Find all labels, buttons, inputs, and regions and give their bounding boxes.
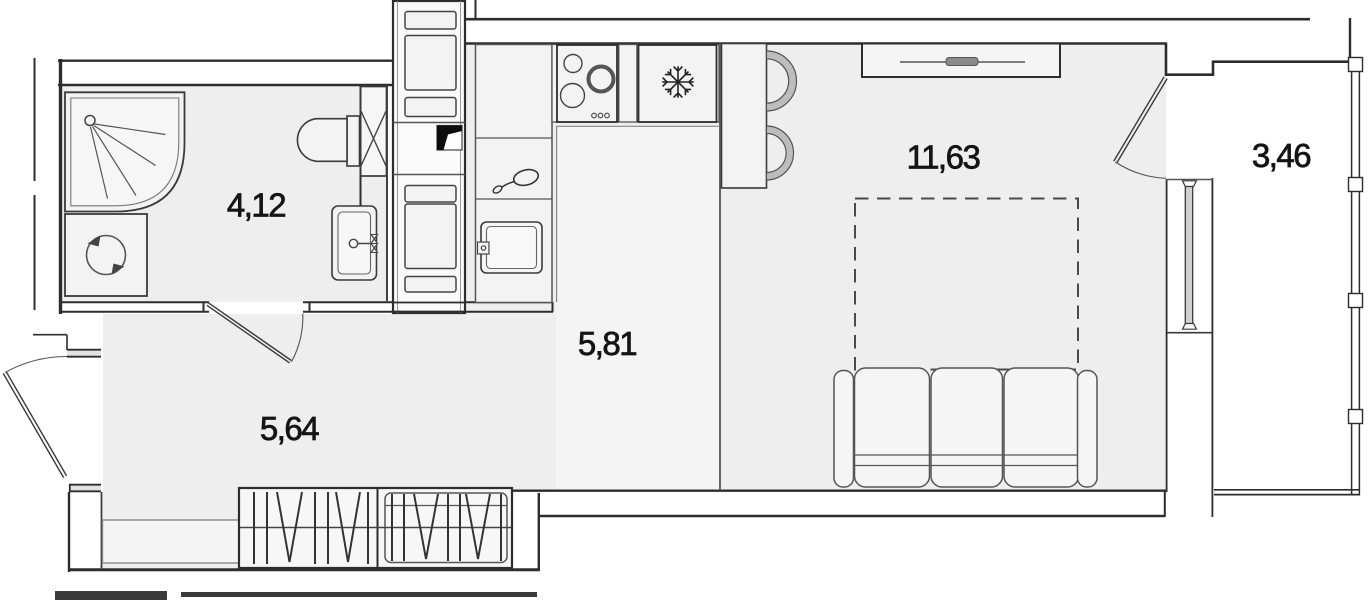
- svg-text:5,64: 5,64: [260, 410, 319, 447]
- svg-text:5,81: 5,81: [578, 325, 636, 362]
- svg-text:4,12: 4,12: [227, 187, 285, 224]
- svg-text:11,63: 11,63: [907, 139, 980, 176]
- svg-text:3,46: 3,46: [1252, 137, 1310, 174]
